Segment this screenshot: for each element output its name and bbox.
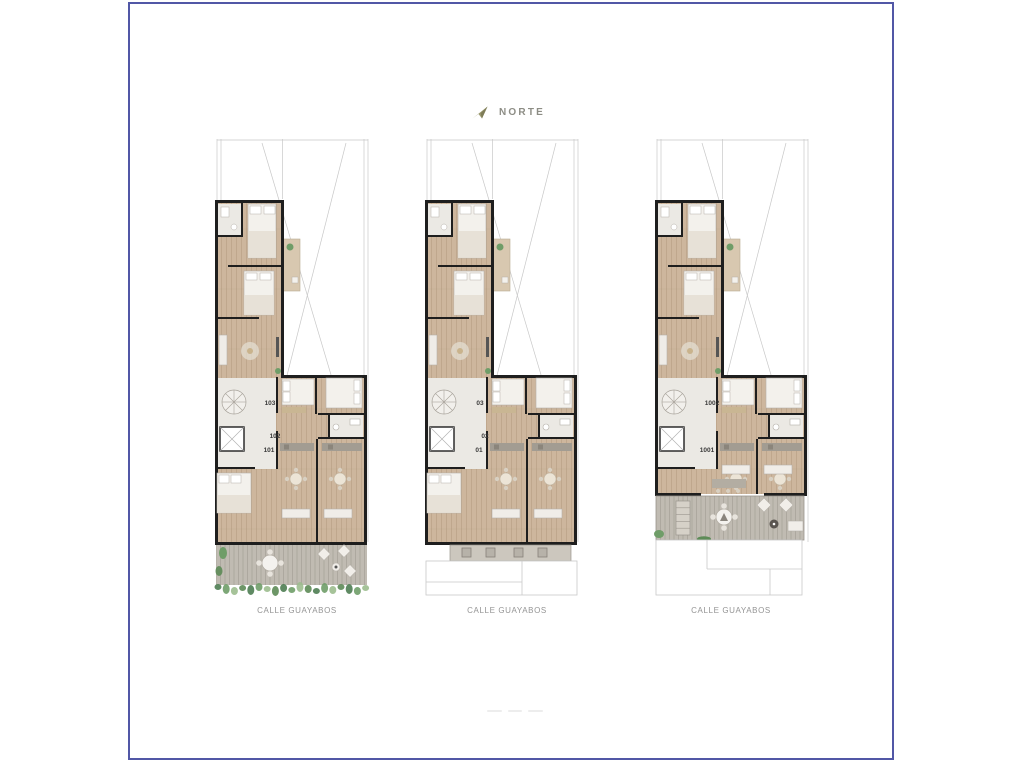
unit-label: 102: [270, 433, 281, 440]
street-label-1: CALLE GUAYABOS: [212, 606, 382, 615]
north-arrow-icon: [472, 105, 489, 120]
floor-plan-2: 030201: [422, 139, 592, 614]
north-label: NORTE: [499, 107, 545, 118]
unit-label: 01: [475, 447, 483, 454]
unit-label: 03: [476, 400, 484, 407]
floor-plan-1: 103102101: [212, 139, 382, 614]
north-compass: NORTE: [472, 105, 545, 120]
unit-label: 1001: [700, 447, 715, 454]
unit-label: 103: [265, 400, 276, 407]
street-label-3: CALLE GUAYABOS: [646, 606, 816, 615]
street-label-2: CALLE GUAYABOS: [422, 606, 592, 615]
floor-plan-3: 10021001: [652, 139, 822, 614]
page: NORTE 103102101 030201 10021001 CALLE GU…: [0, 0, 1024, 768]
unit-label: 1002: [705, 400, 720, 407]
unit-label: 101: [264, 447, 275, 454]
page-indicator: [487, 710, 543, 713]
unit-label: 02: [481, 433, 489, 440]
